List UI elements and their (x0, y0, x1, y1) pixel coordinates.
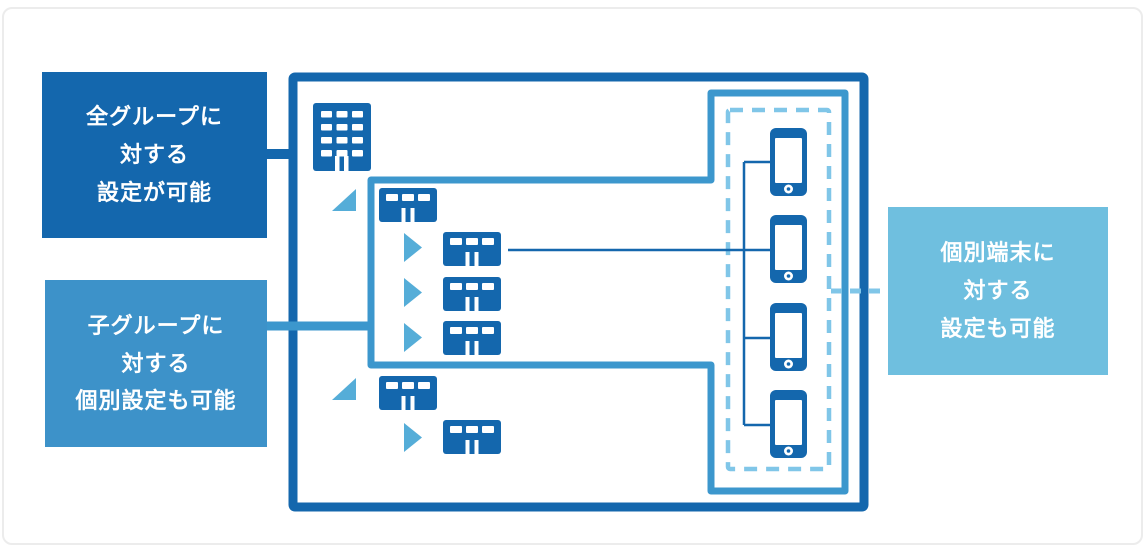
smartphone-icon (770, 390, 807, 458)
branch-building-icon (443, 321, 501, 355)
expanded-triangle-icon (332, 189, 356, 211)
smartphone-icon (770, 303, 807, 371)
child-arrow-icon (404, 423, 422, 452)
label-line: 対する (963, 272, 1032, 310)
smartphone-icon (770, 215, 807, 283)
label-line: 個別設定も可能 (75, 382, 236, 420)
label-line: 全グループに (86, 98, 223, 136)
branch-building-icon (443, 277, 501, 311)
label-line: 子グループに (88, 307, 225, 345)
label-line: 個別端末に (940, 234, 1055, 272)
smartphone-icon (770, 128, 807, 196)
child-arrow-icon (404, 278, 422, 307)
expanded-triangle-icon (332, 378, 356, 400)
label-line: 対する (120, 136, 189, 174)
branch-building-icon (379, 188, 437, 222)
branch-building-icon (443, 232, 501, 266)
label-line: 対する (121, 345, 190, 383)
infographic-canvas: 全グループに 対する 設定が可能 子グループに 対する 個別設定も可能 個別端末… (0, 0, 1145, 550)
branch-building-icon (443, 420, 501, 454)
label-line: 設定が可能 (97, 174, 212, 212)
branch-building-icon (379, 376, 437, 410)
child-arrow-icon (404, 233, 422, 262)
label-child-groups: 子グループに 対する 個別設定も可能 (45, 280, 267, 447)
label-all-groups: 全グループに 対する 設定が可能 (42, 72, 267, 238)
label-individual-devices: 個別端末に 対する 設定も可能 (888, 207, 1108, 375)
child-arrow-icon (404, 323, 422, 352)
hq-building-icon (313, 103, 371, 171)
label-line: 設定も可能 (940, 310, 1055, 348)
